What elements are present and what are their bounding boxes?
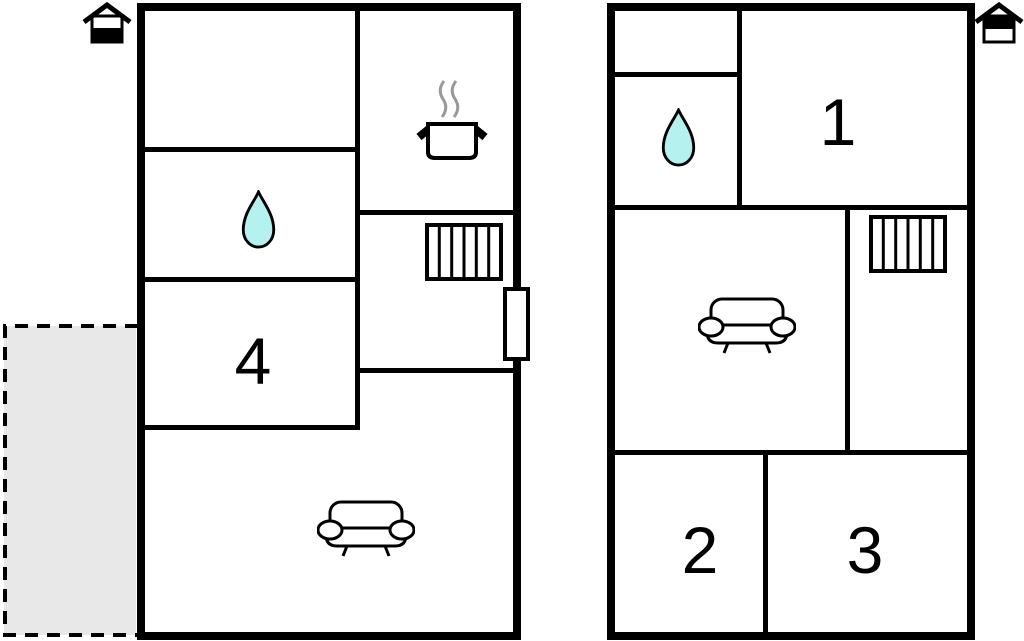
- upper-floor-house-icon: [974, 2, 1024, 44]
- water-drop-icon: [660, 108, 697, 167]
- entrance-door: [503, 287, 530, 361]
- wall-middle-bottom: [615, 450, 967, 455]
- pot-body: [428, 124, 476, 158]
- house-upper-band: [986, 18, 1013, 30]
- wall-room1-bottom: [615, 205, 967, 210]
- stairs-icon: [425, 223, 503, 281]
- sofa-armrest-right: [771, 318, 795, 336]
- water-drop-icon: [240, 190, 277, 249]
- wall-room2-room3-divider: [763, 455, 768, 632]
- terrace-fill: [4, 326, 136, 635]
- sofa-icon: [317, 500, 415, 558]
- ground-floor-plan: 4: [137, 3, 521, 640]
- steam-line-icon: [452, 81, 458, 117]
- room-label-2: 2: [650, 510, 750, 590]
- wall-topleft-room-bottom: [145, 147, 360, 152]
- stairs-icon: [868, 215, 948, 273]
- sofa-icon: [698, 297, 796, 355]
- ground-floor-house-icon: [82, 2, 132, 44]
- room-label-1: 1: [788, 82, 888, 162]
- wall-room4-bottom: [145, 425, 360, 430]
- sofa-armrest-right: [390, 521, 414, 539]
- water-drop-shape: [243, 192, 273, 247]
- wall-small-room-bottom: [615, 72, 742, 77]
- upper-floor-plan: 1 2 3: [607, 3, 975, 640]
- wall-kitchen-bottom: [355, 210, 513, 215]
- steam-line-icon: [440, 81, 446, 117]
- wall-bathroom-bottom: [145, 277, 360, 282]
- sofa-armrest-left: [699, 318, 723, 336]
- wall-hall-bottom: [355, 368, 513, 373]
- room-label-3: 3: [815, 510, 915, 590]
- house-ground-band: [94, 28, 121, 41]
- cooking-pot-icon: [414, 78, 490, 162]
- terrace-area: [2, 323, 138, 638]
- wall-vertical-middle: [845, 210, 850, 450]
- sofa-armrest-left: [318, 521, 342, 539]
- floorplan-canvas: 4 1 2 3: [0, 0, 1024, 641]
- water-drop-shape: [663, 110, 693, 165]
- wall-vertical-top: [737, 11, 742, 205]
- room-label-4: 4: [203, 321, 303, 401]
